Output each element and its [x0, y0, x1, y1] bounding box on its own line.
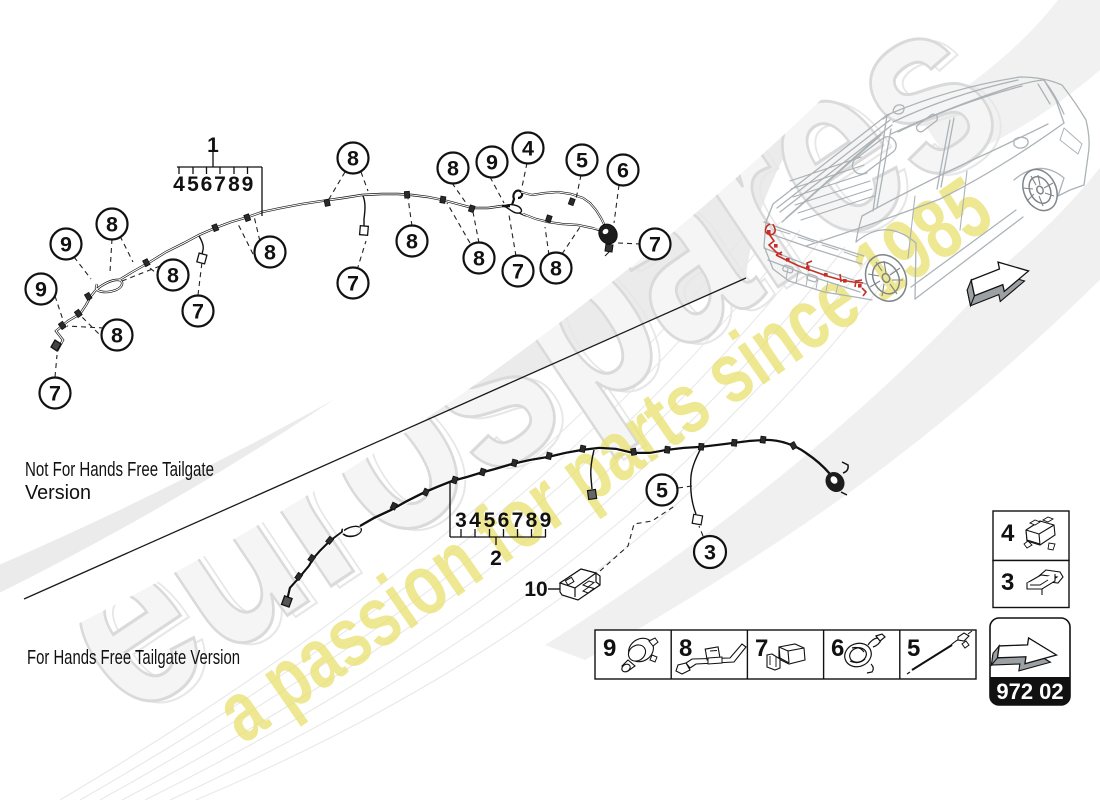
svg-text:4: 4 [469, 509, 481, 532]
svg-text:Not For Hands Free Tailgate: Not For Hands Free Tailgate [25, 459, 214, 481]
svg-text:8: 8 [228, 173, 240, 196]
svg-text:9: 9 [242, 173, 254, 196]
svg-text:7: 7 [512, 260, 524, 284]
svg-text:8: 8 [406, 230, 418, 254]
svg-text:Version: Version [25, 482, 91, 504]
svg-text:3: 3 [455, 509, 467, 532]
svg-text:9: 9 [603, 635, 616, 662]
svg-text:8: 8 [264, 241, 276, 265]
svg-text:7: 7 [512, 509, 524, 532]
svg-text:3: 3 [704, 541, 716, 565]
svg-text:6: 6 [498, 509, 510, 532]
svg-text:6: 6 [831, 635, 844, 662]
svg-text:For Hands Free Tailgate Versio: For Hands Free Tailgate Version [27, 647, 240, 669]
svg-text:7: 7 [214, 173, 226, 196]
svg-text:5: 5 [907, 635, 920, 662]
svg-text:5: 5 [484, 509, 496, 532]
svg-text:8: 8 [679, 635, 692, 662]
svg-text:8: 8 [167, 264, 179, 288]
svg-text:6: 6 [617, 159, 629, 183]
svg-text:7: 7 [649, 233, 661, 257]
svg-text:9: 9 [540, 509, 552, 532]
svg-text:4: 4 [173, 173, 185, 196]
svg-text:9: 9 [486, 151, 498, 175]
svg-text:7: 7 [49, 382, 61, 406]
svg-text:5: 5 [656, 479, 668, 503]
svg-text:4: 4 [1001, 520, 1015, 547]
svg-text:5: 5 [187, 173, 199, 196]
svg-text:6: 6 [201, 173, 213, 196]
svg-text:7: 7 [755, 635, 768, 662]
svg-text:8: 8 [347, 147, 359, 171]
svg-text:9: 9 [60, 233, 72, 257]
svg-text:8: 8 [106, 213, 118, 237]
svg-text:8: 8 [526, 509, 538, 532]
svg-text:7: 7 [192, 300, 204, 324]
svg-text:1: 1 [207, 134, 219, 157]
svg-text:2: 2 [490, 547, 502, 570]
svg-text:5: 5 [576, 149, 588, 173]
svg-text:8: 8 [447, 157, 459, 181]
svg-text:3: 3 [1001, 569, 1014, 596]
svg-text:972 02: 972 02 [996, 679, 1063, 704]
svg-text:7: 7 [347, 272, 359, 296]
svg-text:9: 9 [35, 278, 47, 302]
svg-text:8: 8 [550, 257, 562, 281]
svg-text:8: 8 [111, 324, 123, 348]
svg-text:8: 8 [473, 247, 485, 271]
svg-text:10: 10 [524, 578, 547, 601]
svg-text:4: 4 [522, 137, 534, 161]
